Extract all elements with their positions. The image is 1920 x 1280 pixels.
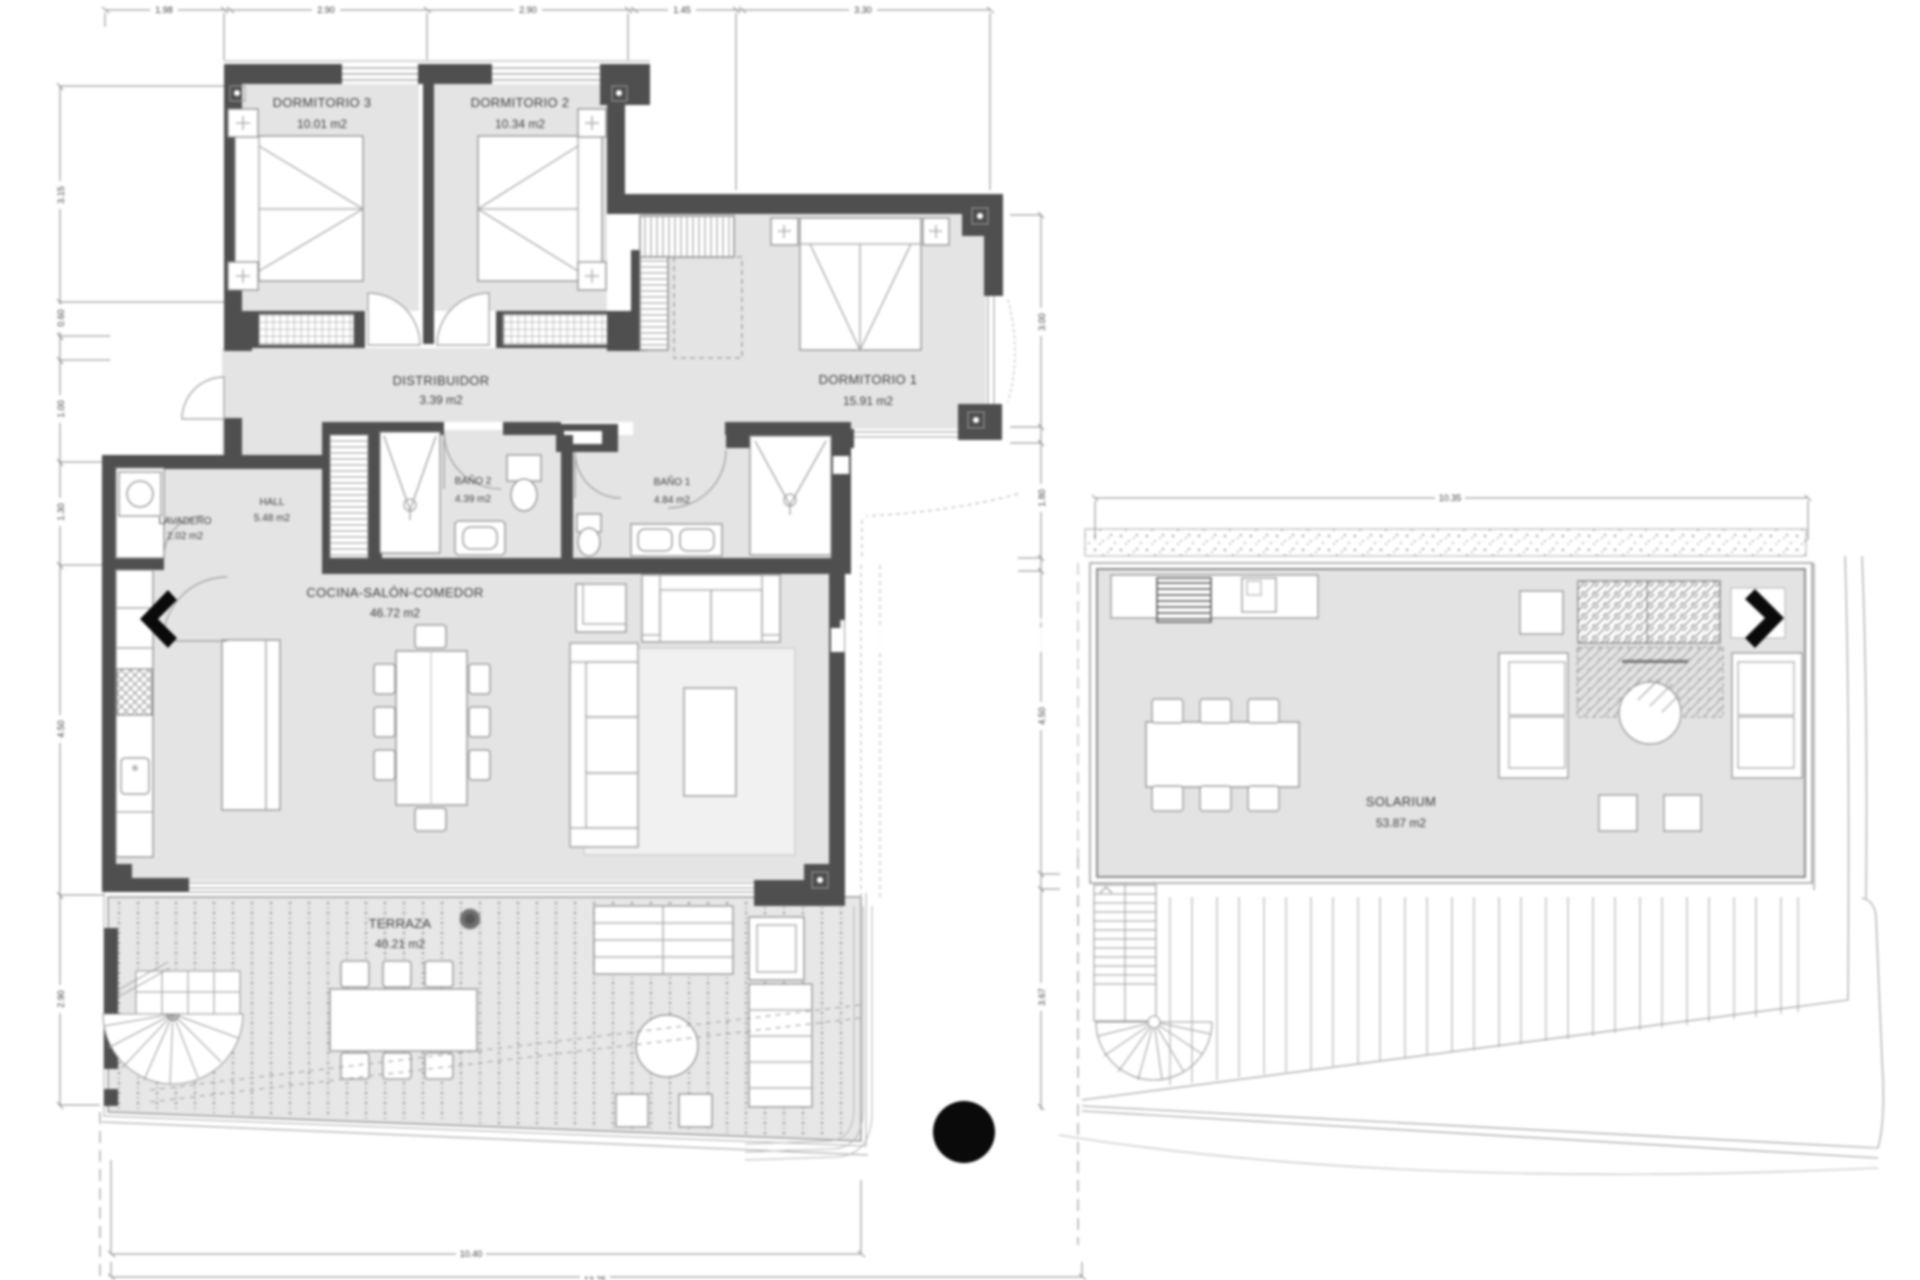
svg-text:10.40: 10.40: [460, 1249, 483, 1259]
svg-text:46.72 m2: 46.72 m2: [370, 606, 420, 620]
svg-text:2.02 m2: 2.02 m2: [167, 531, 204, 542]
svg-text:4.39 m2: 4.39 m2: [455, 494, 492, 505]
svg-text:BAÑO 1: BAÑO 1: [654, 475, 691, 488]
svg-text:Inmobiliaria: Inmobiliaria: [836, 610, 1072, 662]
svg-text:SOLARIUM: SOLARIUM: [1366, 794, 1436, 809]
svg-text:3.39 m2: 3.39 m2: [419, 393, 463, 407]
svg-text:DORMITORIO 3: DORMITORIO 3: [273, 95, 372, 110]
svg-text:5.48 m2: 5.48 m2: [254, 513, 291, 524]
svg-text:1.00: 1.00: [56, 400, 66, 418]
svg-text:53.87 m2: 53.87 m2: [1376, 816, 1426, 830]
svg-text:10.34 m2: 10.34 m2: [495, 117, 545, 131]
svg-text:DORMITORIO 2: DORMITORIO 2: [471, 95, 570, 110]
svg-text:1.98: 1.98: [155, 5, 173, 15]
svg-text:3.67: 3.67: [1037, 988, 1047, 1006]
svg-text:15.91 m2: 15.91 m2: [843, 394, 893, 408]
svg-text:BAÑO 2: BAÑO 2: [455, 474, 492, 487]
svg-text:2.90: 2.90: [56, 990, 66, 1008]
svg-text:10.01 m2: 10.01 m2: [297, 117, 347, 131]
svg-text:4.50: 4.50: [56, 720, 66, 738]
svg-text:1.80: 1.80: [1037, 489, 1047, 507]
svg-text:4.50: 4.50: [1037, 707, 1047, 725]
svg-text:TERRAZA: TERRAZA: [369, 916, 432, 931]
svg-text:4.84 m2: 4.84 m2: [654, 495, 691, 506]
svg-text:HALL: HALL: [259, 497, 284, 508]
svg-text:LAVADERO: LAVADERO: [159, 516, 212, 527]
svg-text:40.21 m2: 40.21 m2: [375, 937, 425, 951]
svg-text:0.60: 0.60: [56, 309, 66, 327]
svg-text:2.90: 2.90: [317, 5, 335, 15]
svg-text:13.75: 13.75: [584, 1275, 607, 1280]
svg-text:3.30: 3.30: [854, 5, 872, 15]
svg-text:3.00: 3.00: [1037, 313, 1047, 331]
svg-text:1.30: 1.30: [56, 503, 66, 521]
svg-text:DISTRIBUIDOR: DISTRIBUIDOR: [393, 373, 490, 388]
svg-text:COCINA-SALÓN-COMEDOR: COCINA-SALÓN-COMEDOR: [306, 585, 483, 600]
svg-text:2.90: 2.90: [519, 5, 537, 15]
svg-text:DORMITORIO 1: DORMITORIO 1: [819, 372, 918, 387]
svg-text:3.15: 3.15: [56, 186, 66, 204]
svg-text:1.45: 1.45: [673, 5, 691, 15]
svg-text:10.35: 10.35: [1439, 493, 1462, 503]
